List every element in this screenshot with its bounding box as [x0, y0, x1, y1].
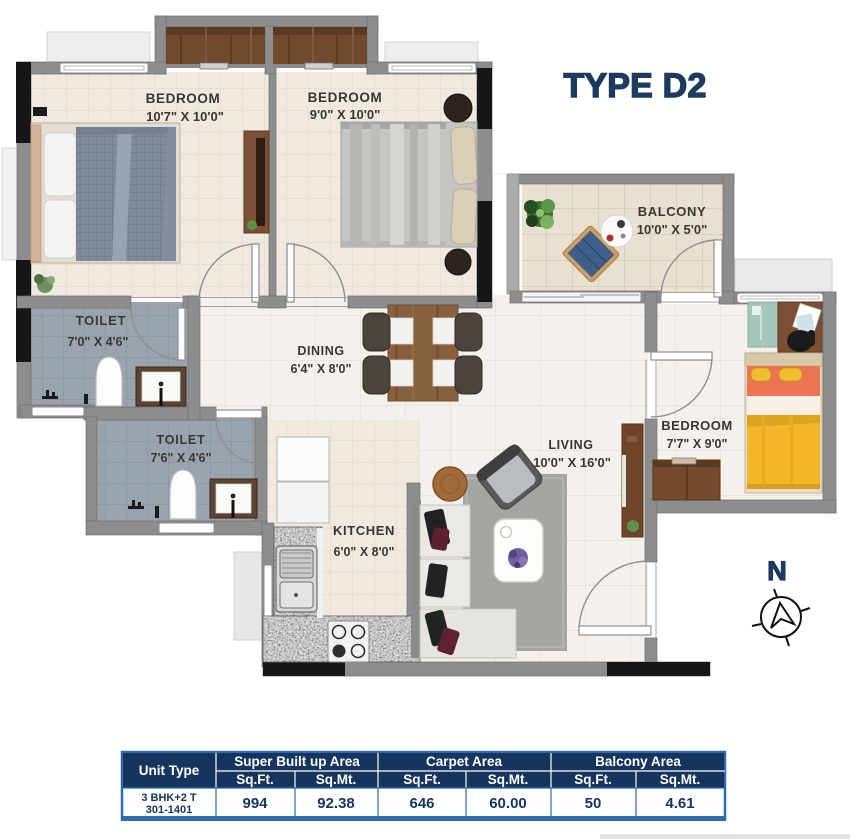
svg-text:Sq.Mt.: Sq.Mt.: [488, 772, 529, 787]
svg-text:301-1401: 301-1401: [146, 804, 193, 816]
svg-text:60.00: 60.00: [489, 795, 527, 812]
svg-text:TOILET: TOILET: [156, 433, 205, 447]
svg-text:994: 994: [242, 795, 268, 812]
svg-text:Sq.Ft.: Sq.Ft.: [236, 772, 274, 787]
svg-text:BEDROOM: BEDROOM: [146, 91, 221, 106]
svg-text:KITCHEN: KITCHEN: [333, 523, 395, 538]
svg-text:Sq.Ft.: Sq.Ft.: [574, 772, 612, 787]
svg-text:DINING: DINING: [297, 344, 344, 358]
svg-text:9'0" X 10'0": 9'0" X 10'0": [310, 107, 381, 122]
svg-text:Carpet Area: Carpet Area: [426, 754, 503, 769]
svg-text:Unit Type: Unit Type: [139, 763, 200, 778]
svg-text:N: N: [767, 556, 787, 586]
svg-text:6'0" X 8'0": 6'0" X 8'0": [334, 545, 395, 559]
svg-text:10'0" X 5'0": 10'0" X 5'0": [637, 222, 708, 237]
svg-text:4.61: 4.61: [665, 795, 694, 812]
svg-text:7'7" X 9'0": 7'7" X 9'0": [667, 437, 728, 451]
svg-text:TYPE D2: TYPE D2: [563, 67, 706, 105]
svg-text:BEDROOM: BEDROOM: [661, 418, 732, 433]
svg-text:3 BHK+2 T: 3 BHK+2 T: [141, 792, 197, 804]
svg-text:Sq.Ft.: Sq.Ft.: [403, 772, 441, 787]
svg-text:10'0" X 16'0": 10'0" X 16'0": [533, 455, 611, 470]
svg-text:6'4" X 8'0": 6'4" X 8'0": [291, 362, 352, 376]
svg-text:646: 646: [409, 795, 434, 812]
svg-text:7'0" X 4'6": 7'0" X 4'6": [68, 335, 129, 349]
svg-text:BALCONY: BALCONY: [638, 204, 706, 219]
svg-text:50: 50: [585, 795, 602, 812]
svg-text:Sq.Mt.: Sq.Mt.: [660, 772, 701, 787]
svg-text:Sq.Mt.: Sq.Mt.: [316, 772, 357, 787]
svg-text:10'7" X 10'0": 10'7" X 10'0": [146, 109, 224, 124]
svg-text:BEDROOM: BEDROOM: [308, 90, 383, 105]
svg-text:LIVING: LIVING: [548, 438, 593, 452]
svg-text:TOILET: TOILET: [76, 313, 127, 328]
svg-text:7'6" X 4'6": 7'6" X 4'6": [151, 451, 212, 465]
svg-text:Balcony Area: Balcony Area: [595, 754, 681, 769]
svg-text:Super Built up Area: Super Built up Area: [234, 754, 360, 769]
svg-text:92.38: 92.38: [317, 795, 355, 812]
